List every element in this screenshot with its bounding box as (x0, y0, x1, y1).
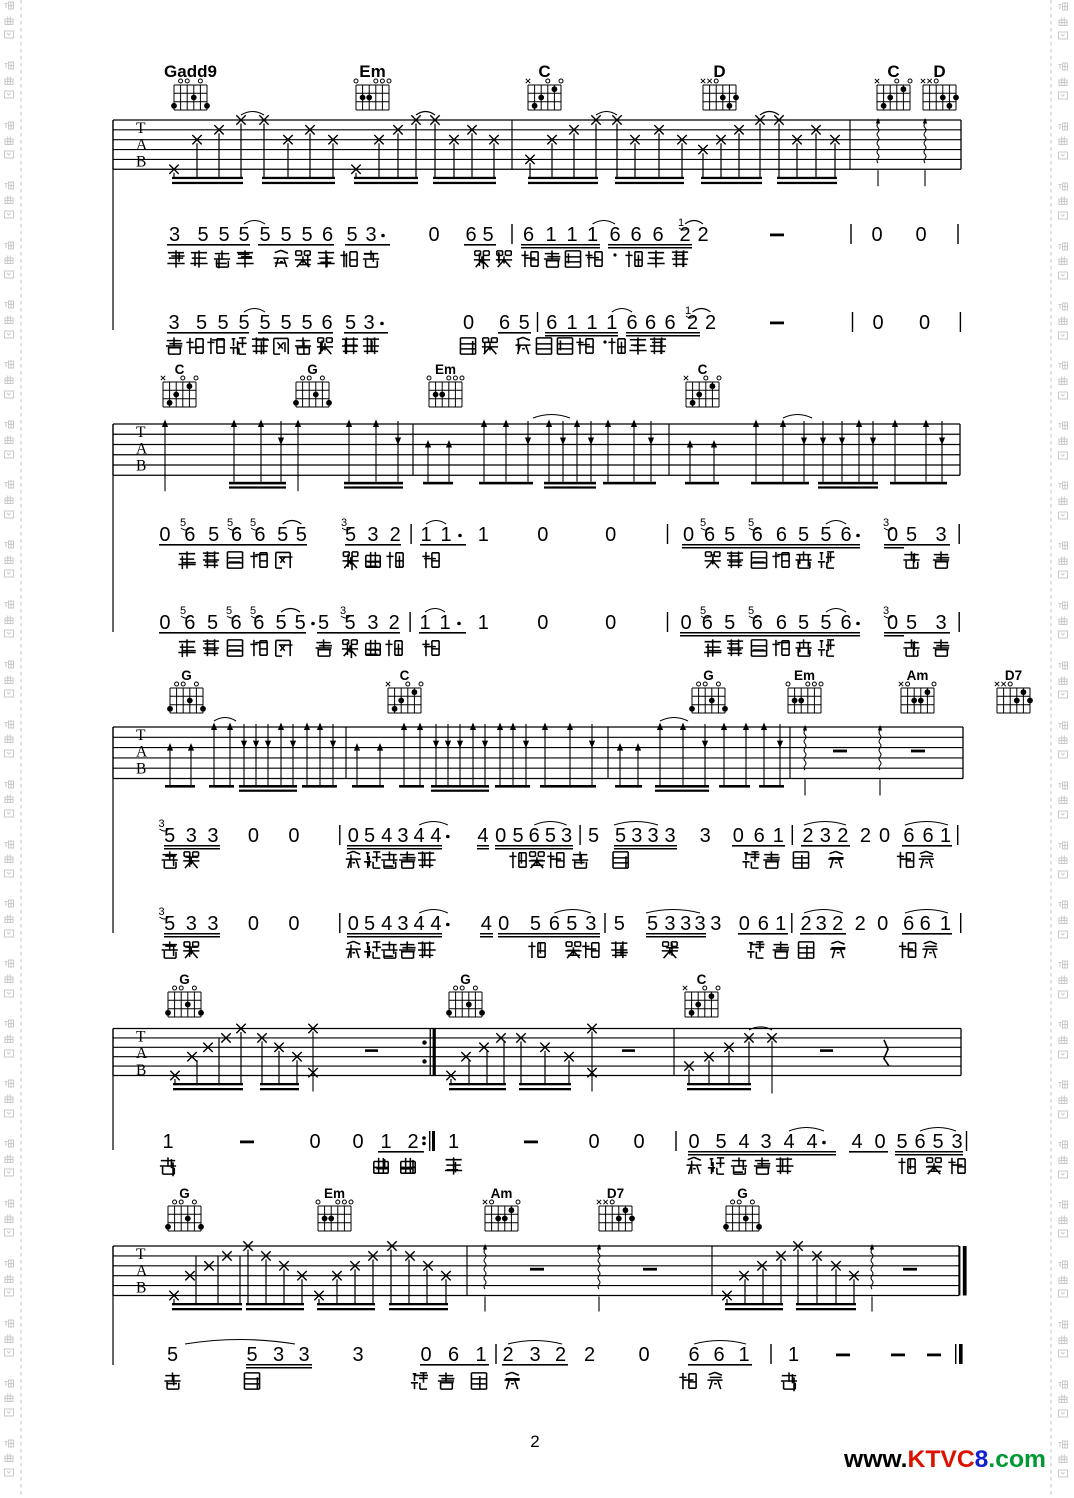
svg-text:5: 5 (748, 605, 754, 617)
svg-text:5: 5 (566, 913, 577, 935)
svg-text:4: 4 (477, 825, 488, 847)
svg-text:C: C (175, 362, 185, 377)
svg-text:2: 2 (855, 913, 866, 935)
svg-text:5: 5 (820, 612, 831, 634)
svg-text:3: 3 (935, 612, 946, 634)
svg-text:4: 4 (381, 913, 392, 935)
svg-text:0: 0 (352, 1131, 363, 1153)
svg-text:5: 5 (724, 612, 735, 634)
svg-text:6: 6 (903, 913, 914, 935)
svg-text:1: 1 (788, 1344, 799, 1366)
svg-text:Am: Am (491, 1186, 513, 1201)
svg-text:5: 5 (724, 524, 735, 546)
svg-text:4: 4 (430, 913, 441, 935)
svg-text:Em: Em (794, 668, 815, 683)
svg-text:5: 5 (238, 224, 249, 246)
svg-text:0: 0 (288, 913, 299, 935)
svg-text:A: A (136, 1045, 148, 1062)
svg-text:3: 3 (365, 224, 376, 246)
svg-text:1: 1 (587, 224, 598, 246)
svg-text:G: G (179, 1186, 190, 1201)
svg-text:0: 0 (683, 524, 694, 546)
svg-text:5: 5 (715, 1131, 726, 1153)
svg-text:6: 6 (448, 1344, 459, 1366)
svg-text:5: 5 (700, 517, 706, 529)
svg-text:5: 5 (647, 913, 658, 935)
svg-text:2: 2 (837, 825, 848, 847)
svg-text:0: 0 (420, 1344, 431, 1366)
svg-text:6: 6 (841, 524, 852, 546)
svg-text:0: 0 (605, 524, 616, 546)
svg-text:5: 5 (238, 312, 249, 334)
svg-text:www.KTVC8.com: www.KTVC8.com (843, 1446, 1046, 1473)
svg-text:5: 5 (218, 224, 229, 246)
svg-text:2: 2 (705, 312, 716, 334)
svg-text:5: 5 (280, 312, 291, 334)
svg-text:6: 6 (321, 312, 332, 334)
svg-text:3: 3 (159, 818, 165, 830)
svg-text:5: 5 (301, 224, 312, 246)
svg-text:5: 5 (798, 524, 809, 546)
svg-text:5: 5 (164, 913, 175, 935)
svg-text:3: 3 (760, 1131, 771, 1153)
svg-text:2: 2 (832, 913, 843, 935)
svg-text:3: 3 (935, 524, 946, 546)
svg-text:6: 6 (529, 825, 540, 847)
svg-text:2: 2 (802, 825, 813, 847)
svg-text:6: 6 (776, 524, 787, 546)
svg-text:3: 3 (883, 605, 889, 617)
svg-text:5: 5 (615, 825, 626, 847)
svg-text:5: 5 (259, 224, 270, 246)
svg-text:5: 5 (259, 312, 270, 334)
svg-text:6: 6 (549, 913, 560, 935)
svg-text:A: A (136, 744, 148, 761)
svg-text:1: 1 (940, 825, 951, 847)
svg-text:1: 1 (566, 224, 577, 246)
svg-text:3: 3 (186, 913, 197, 935)
svg-text:0: 0 (348, 913, 359, 935)
svg-text:0: 0 (919, 312, 930, 334)
svg-text:3: 3 (367, 612, 378, 634)
svg-text:4: 4 (783, 1131, 794, 1153)
svg-text:6: 6 (546, 312, 557, 334)
svg-text:1: 1 (586, 312, 597, 334)
svg-text:5: 5 (318, 612, 329, 634)
svg-text:1: 1 (420, 524, 431, 546)
svg-text:6: 6 (652, 224, 663, 246)
svg-text:3: 3 (298, 1344, 309, 1366)
svg-text:3: 3 (647, 825, 658, 847)
svg-text:0: 0 (159, 612, 170, 634)
svg-text:5: 5 (226, 605, 232, 617)
svg-text:0: 0 (498, 913, 509, 935)
svg-text:5: 5 (519, 312, 530, 334)
svg-text:3: 3 (169, 224, 180, 246)
svg-text:Em: Em (435, 362, 456, 377)
svg-text:1: 1 (940, 913, 951, 935)
svg-text:5: 5 (197, 224, 208, 246)
svg-text:0: 0 (915, 224, 926, 246)
svg-text:5: 5 (748, 517, 754, 529)
svg-text:1: 1 (448, 1131, 459, 1153)
svg-text:0: 0 (688, 1131, 699, 1153)
svg-text:5: 5 (364, 913, 375, 935)
svg-text:0: 0 (739, 913, 750, 935)
svg-text:1: 1 (773, 825, 784, 847)
svg-text:C: C (538, 62, 550, 81)
svg-text:5: 5 (345, 612, 356, 634)
svg-text:D: D (713, 62, 725, 81)
svg-text:3: 3 (680, 913, 691, 935)
svg-text:3: 3 (363, 312, 374, 334)
svg-text:3: 3 (159, 906, 165, 918)
svg-text:3: 3 (631, 825, 642, 847)
svg-text:5: 5 (530, 913, 541, 935)
svg-text:3: 3 (664, 825, 675, 847)
svg-text:1: 1 (606, 312, 617, 334)
svg-text:A: A (136, 137, 148, 154)
svg-text:4: 4 (738, 1131, 749, 1153)
svg-text:3: 3 (273, 1344, 284, 1366)
svg-text:5: 5 (180, 605, 186, 617)
svg-text:0: 0 (248, 825, 259, 847)
svg-text:C: C (400, 668, 410, 683)
svg-text:6: 6 (465, 224, 476, 246)
svg-text:Em: Em (359, 62, 385, 81)
svg-text:5: 5 (545, 825, 556, 847)
svg-text:0: 0 (248, 913, 259, 935)
svg-text:1: 1 (440, 612, 451, 634)
svg-text:0: 0 (463, 312, 474, 334)
svg-text:4: 4 (806, 1131, 817, 1153)
svg-text:5: 5 (250, 517, 256, 529)
svg-text:1: 1 (475, 1344, 486, 1366)
svg-text:5: 5 (246, 1344, 257, 1366)
svg-text:2: 2 (555, 1344, 566, 1366)
svg-text:3: 3 (561, 825, 572, 847)
svg-text:5: 5 (276, 612, 287, 634)
svg-text:6: 6 (630, 224, 641, 246)
svg-text:1: 1 (478, 612, 489, 634)
svg-text:1: 1 (162, 1131, 173, 1153)
svg-text:2: 2 (801, 913, 812, 935)
svg-text:6: 6 (523, 224, 534, 246)
svg-text:0: 0 (428, 224, 439, 246)
svg-text:3: 3 (397, 825, 408, 847)
svg-text:5: 5 (798, 612, 809, 634)
svg-text:0: 0 (309, 1131, 320, 1153)
svg-text:G: G (181, 668, 192, 683)
svg-text:4: 4 (430, 825, 441, 847)
svg-text:5: 5 (227, 517, 233, 529)
svg-text:2: 2 (697, 224, 708, 246)
svg-text:5: 5 (512, 825, 523, 847)
svg-text:2: 2 (407, 1131, 418, 1153)
svg-text:1: 1 (380, 1131, 391, 1153)
svg-text:1: 1 (775, 913, 786, 935)
svg-text:3: 3 (710, 913, 721, 935)
svg-text:3: 3 (585, 913, 596, 935)
svg-text:0: 0 (495, 825, 506, 847)
svg-text:6: 6 (609, 224, 620, 246)
svg-text:3: 3 (168, 312, 179, 334)
svg-text:4: 4 (851, 1131, 862, 1153)
svg-text:6: 6 (626, 312, 637, 334)
svg-text:1: 1 (478, 524, 489, 546)
svg-text:Em: Em (324, 1186, 345, 1201)
svg-text:T: T (136, 727, 146, 744)
svg-text:5: 5 (167, 1344, 178, 1366)
svg-text:3: 3 (883, 517, 889, 529)
svg-text:6: 6 (322, 224, 333, 246)
svg-text:C: C (887, 62, 899, 81)
svg-text:B: B (136, 458, 146, 475)
svg-text:1: 1 (678, 217, 684, 229)
svg-text:5: 5 (280, 224, 291, 246)
svg-text:0: 0 (638, 1344, 649, 1366)
svg-text:5: 5 (207, 612, 218, 634)
svg-text:0: 0 (159, 524, 170, 546)
svg-text:0: 0 (872, 312, 883, 334)
svg-text:4: 4 (414, 825, 425, 847)
svg-text:Gadd9: Gadd9 (164, 62, 217, 81)
svg-text:5: 5 (614, 913, 625, 935)
svg-text:6: 6 (230, 612, 241, 634)
svg-text:5: 5 (295, 612, 306, 634)
svg-text:B: B (136, 1280, 146, 1297)
svg-text:5: 5 (277, 524, 288, 546)
svg-text:0: 0 (877, 913, 888, 935)
svg-text:5: 5 (482, 224, 493, 246)
svg-text:0: 0 (288, 825, 299, 847)
svg-text:5: 5 (906, 524, 917, 546)
svg-text:5: 5 (301, 312, 312, 334)
svg-text:2: 2 (390, 524, 401, 546)
svg-text:0: 0 (348, 825, 359, 847)
svg-text:5: 5 (346, 224, 357, 246)
svg-text:D7: D7 (607, 1186, 624, 1201)
svg-text:3: 3 (397, 913, 408, 935)
svg-text:0: 0 (588, 1131, 599, 1153)
svg-text:0: 0 (871, 224, 882, 246)
svg-text:G: G (703, 668, 714, 683)
svg-text:5: 5 (700, 605, 706, 617)
svg-text:5: 5 (906, 612, 917, 634)
svg-text:B: B (136, 154, 146, 171)
svg-text:3: 3 (207, 913, 218, 935)
svg-text:5: 5 (345, 312, 356, 334)
svg-text:6: 6 (688, 1344, 699, 1366)
svg-text:1: 1 (685, 305, 691, 317)
svg-text:6: 6 (776, 612, 787, 634)
svg-text:6: 6 (903, 825, 914, 847)
svg-text:3: 3 (207, 825, 218, 847)
svg-text:6: 6 (713, 1344, 724, 1366)
svg-text:2: 2 (584, 1344, 595, 1366)
svg-text:5: 5 (364, 825, 375, 847)
svg-text:3: 3 (341, 517, 347, 529)
svg-text:G: G (179, 972, 190, 987)
svg-text:3: 3 (700, 825, 711, 847)
svg-text:A: A (136, 1263, 148, 1280)
svg-text:4: 4 (414, 913, 425, 935)
svg-text:5: 5 (588, 825, 599, 847)
svg-text:4: 4 (481, 913, 492, 935)
svg-text:6: 6 (645, 312, 656, 334)
svg-text:0: 0 (879, 825, 890, 847)
svg-text:6: 6 (758, 913, 769, 935)
svg-text:5: 5 (164, 825, 175, 847)
svg-text:G: G (737, 1186, 748, 1201)
svg-text:5: 5 (196, 312, 207, 334)
svg-text:0: 0 (633, 1131, 644, 1153)
svg-text:5: 5 (296, 524, 307, 546)
svg-text:5: 5 (932, 1131, 943, 1153)
svg-text:3: 3 (186, 825, 197, 847)
svg-text:6: 6 (499, 312, 510, 334)
svg-text:A: A (136, 441, 148, 458)
svg-text:5: 5 (820, 524, 831, 546)
svg-text:6: 6 (754, 825, 765, 847)
svg-text:T: T (136, 424, 146, 441)
svg-text:B: B (136, 1062, 146, 1079)
svg-text:1: 1 (566, 312, 577, 334)
svg-text:0: 0 (681, 612, 692, 634)
svg-text:D7: D7 (1005, 668, 1022, 683)
svg-text:0: 0 (874, 1131, 885, 1153)
svg-text:5: 5 (217, 312, 228, 334)
svg-text:6: 6 (841, 612, 852, 634)
svg-text:3: 3 (816, 913, 827, 935)
svg-text:0: 0 (733, 825, 744, 847)
svg-text:5: 5 (208, 524, 219, 546)
svg-text:2: 2 (389, 612, 400, 634)
svg-text:T: T (136, 120, 146, 137)
svg-text:C: C (697, 972, 707, 987)
svg-text:3: 3 (664, 913, 675, 935)
svg-text:0: 0 (537, 612, 548, 634)
svg-text:T: T (136, 1246, 146, 1263)
svg-text:3: 3 (820, 825, 831, 847)
svg-text:1: 1 (441, 524, 452, 546)
svg-text:1: 1 (738, 1344, 749, 1366)
svg-text:0: 0 (605, 612, 616, 634)
svg-text:6: 6 (664, 312, 675, 334)
svg-text:3: 3 (352, 1344, 363, 1366)
svg-text:2: 2 (860, 825, 871, 847)
svg-text:3: 3 (367, 524, 378, 546)
svg-text:1: 1 (419, 612, 430, 634)
svg-text:3: 3 (529, 1344, 540, 1366)
svg-text:5: 5 (180, 517, 186, 529)
svg-text:G: G (460, 972, 471, 987)
svg-text:5: 5 (896, 1131, 907, 1153)
svg-text:Am: Am (907, 668, 929, 683)
svg-text:3: 3 (951, 1131, 962, 1153)
svg-text:T: T (136, 1029, 146, 1046)
svg-text:5: 5 (250, 605, 256, 617)
svg-text:3: 3 (694, 913, 705, 935)
svg-text:0: 0 (537, 524, 548, 546)
svg-text:3: 3 (340, 605, 346, 617)
svg-text:6: 6 (914, 1131, 925, 1153)
svg-text:4: 4 (381, 825, 392, 847)
svg-text:6: 6 (920, 913, 931, 935)
svg-text:2: 2 (530, 1432, 539, 1451)
svg-text:G: G (307, 362, 318, 377)
svg-text:D: D (933, 62, 945, 81)
svg-text:B: B (136, 761, 146, 778)
svg-text:6: 6 (923, 825, 934, 847)
svg-text:C: C (698, 362, 708, 377)
svg-text:2: 2 (502, 1344, 513, 1366)
svg-text:1: 1 (545, 224, 556, 246)
